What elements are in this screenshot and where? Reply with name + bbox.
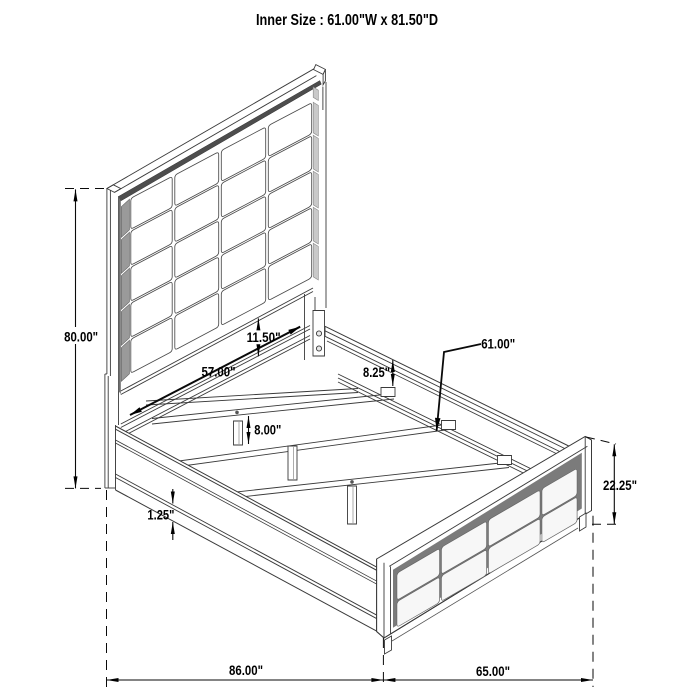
svg-text:80.00": 80.00"	[64, 329, 98, 344]
svg-text:22.25": 22.25"	[603, 478, 637, 493]
svg-text:61.00": 61.00"	[481, 336, 515, 351]
svg-text:8.25": 8.25"	[363, 365, 390, 380]
svg-text:8.00": 8.00"	[254, 423, 281, 438]
svg-text:86.00": 86.00"	[229, 663, 263, 678]
svg-text:57.00": 57.00"	[202, 364, 236, 379]
svg-text:65.00": 65.00"	[476, 664, 510, 679]
svg-text:1.25": 1.25"	[147, 508, 174, 523]
svg-text:11.50": 11.50"	[247, 330, 281, 345]
svg-text:Inner Size : 61.00"W x 81.50"D: Inner Size : 61.00"W x 81.50"D	[256, 12, 438, 29]
